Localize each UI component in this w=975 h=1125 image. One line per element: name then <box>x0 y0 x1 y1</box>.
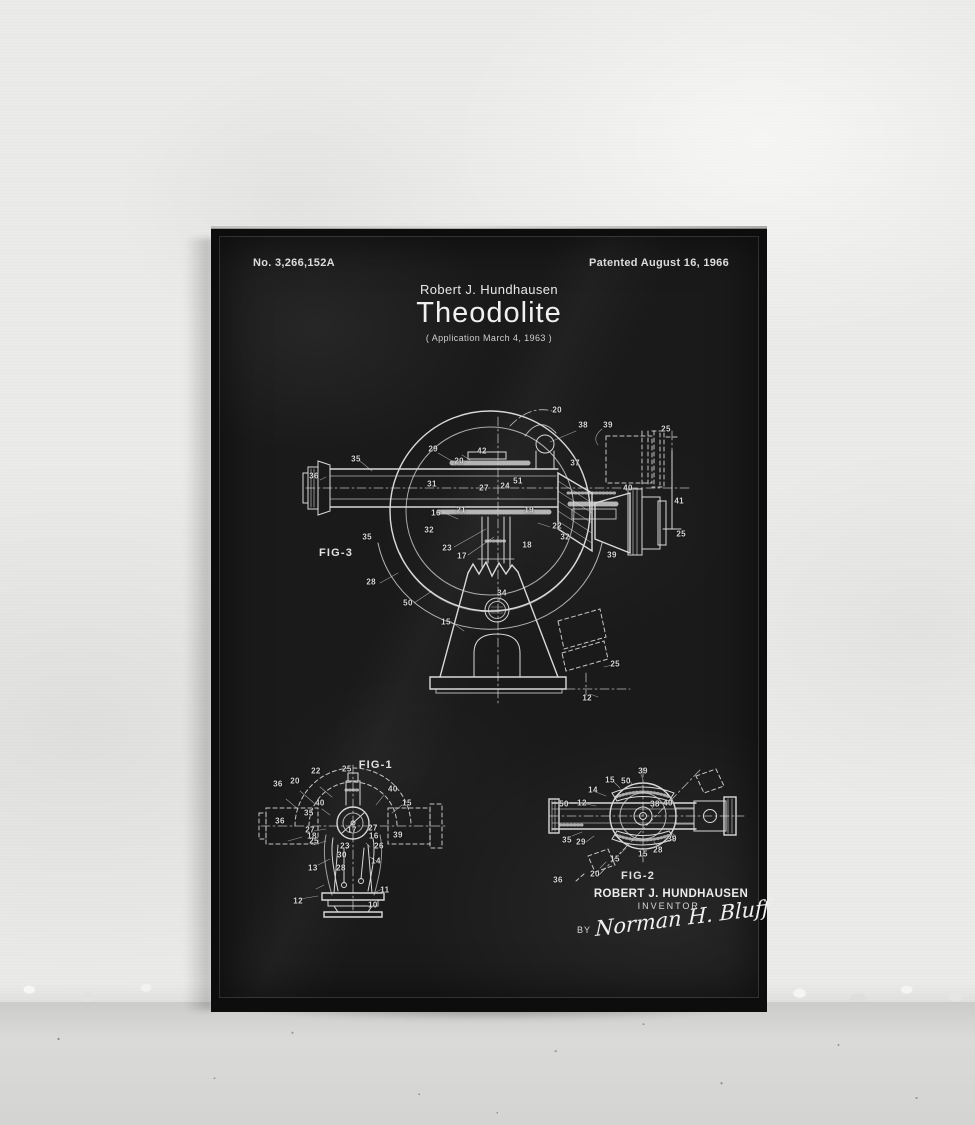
reference-numeral: 51 <box>513 476 523 485</box>
reference-numeral: 30 <box>337 850 347 859</box>
figure-2-drawing <box>548 764 748 884</box>
by-label: BY <box>577 925 591 935</box>
frame-shadow-left <box>180 238 212 1010</box>
reference-numeral: 39 <box>393 831 403 840</box>
reference-numeral: 36 <box>309 472 319 481</box>
reference-numeral: 31 <box>427 479 437 488</box>
reference-numeral: 10 <box>368 900 378 909</box>
reference-numeral: 12 <box>577 799 587 808</box>
reference-numeral: 12 <box>582 694 592 703</box>
reference-numeral: 15 <box>638 850 648 859</box>
reference-numeral: 34 <box>497 588 507 597</box>
reference-numeral: 20 <box>454 456 464 465</box>
reference-numeral: 39 <box>603 420 613 429</box>
application-date-line: ( Application March 4, 1963 ) <box>219 333 759 343</box>
reference-numeral: 17 <box>347 826 357 835</box>
inventor-signature-name: ROBERT J. HUNDHAUSEN <box>591 888 751 900</box>
reference-numeral: 29 <box>576 838 586 847</box>
reference-numeral: 50 <box>403 599 413 608</box>
figure-2-top-view: FIG-2 39155014125038403529392815152036 <box>548 764 748 884</box>
reference-numeral: 25 <box>676 530 686 539</box>
reference-numeral: 14 <box>371 857 381 866</box>
reference-numeral: 15 <box>605 775 615 784</box>
reference-numeral: 36 <box>553 876 563 885</box>
reference-numeral: 37 <box>570 458 580 467</box>
reference-numeral: 35 <box>351 454 361 463</box>
reference-numeral: 15 <box>610 855 620 864</box>
reference-numeral: 16 <box>431 509 441 518</box>
reference-numeral: 29 <box>428 444 438 453</box>
reference-numeral: 39 <box>638 766 648 775</box>
reference-numeral: 36 <box>273 780 283 789</box>
reference-numeral: 25 <box>309 836 319 845</box>
reference-numeral: 17 <box>457 551 467 560</box>
reference-numeral: 20 <box>552 406 562 415</box>
patent-date: Patented August 16, 1966 <box>589 257 729 269</box>
inventor-name-line: Robert J. Hundhausen <box>219 282 759 297</box>
reference-numeral: 23 <box>340 842 350 851</box>
reference-numeral: 35 <box>562 835 572 844</box>
reference-numeral: 18 <box>522 541 532 550</box>
reference-numeral: 32 <box>560 533 570 542</box>
reference-numeral: 28 <box>366 577 376 586</box>
reference-numeral: 40 <box>388 784 398 793</box>
reference-numeral: 22 <box>311 766 321 775</box>
reference-numeral: 15 <box>402 798 412 807</box>
reference-numeral: 41 <box>674 497 684 506</box>
reference-numeral: 25 <box>342 765 352 774</box>
signature-block: ROBERT J. HUNDHAUSEN INVENTOR. BY Norman… <box>591 888 751 941</box>
reference-numeral: 19 <box>524 506 534 515</box>
figure-3-label: FIG-3 <box>319 547 353 559</box>
reference-numeral: 50 <box>559 799 569 808</box>
figure-1-front-view: FIG-1 2225203640401535362717271816392523… <box>258 753 448 918</box>
reference-numeral: 13 <box>308 864 318 873</box>
reference-numeral: 16 <box>369 831 379 840</box>
reference-numeral: 40 <box>663 799 673 808</box>
reference-numeral: 38 <box>650 799 660 808</box>
reference-numeral: 20 <box>290 777 300 786</box>
patent-poster: No. 3,266,152A Patented August 16, 1966 … <box>219 236 759 998</box>
reference-numeral: 24 <box>500 481 510 490</box>
reference-numeral: 42 <box>477 446 487 455</box>
reference-numeral: 38 <box>578 420 588 429</box>
reference-numeral: 40 <box>315 798 325 807</box>
reference-numeral: 36 <box>275 816 285 825</box>
reference-numeral: 14 <box>588 786 598 795</box>
reference-numeral: 39 <box>667 835 677 844</box>
poster-title: Theodolite <box>219 297 759 330</box>
reference-numeral: 25 <box>610 660 620 669</box>
reference-numeral: 50 <box>621 777 631 786</box>
reference-numeral: 35 <box>304 809 314 818</box>
reference-numeral: 23 <box>442 543 452 552</box>
reference-numeral: 32 <box>424 526 434 535</box>
reference-numeral: 28 <box>336 864 346 873</box>
reference-numeral: 25 <box>661 424 671 433</box>
poster-frame: No. 3,266,152A Patented August 16, 1966 … <box>211 228 767 1012</box>
reference-numeral: 22 <box>552 521 562 530</box>
figure-1-drawing <box>258 753 448 918</box>
figure-3-side-view: FIG-3 2038392529422035373631512427404121… <box>300 381 700 711</box>
reference-numeral: 39 <box>607 550 617 559</box>
reference-numeral: 28 <box>653 846 663 855</box>
reference-numeral: 21 <box>456 506 466 515</box>
reference-numeral: 11 <box>380 885 389 894</box>
reference-numeral: 12 <box>293 897 303 906</box>
reference-numeral: 26 <box>374 842 384 851</box>
figure-2-label: FIG-2 <box>621 870 655 882</box>
reference-numeral: 27 <box>479 483 489 492</box>
reference-numeral: 35 <box>362 533 372 542</box>
figure-3-drawing <box>300 381 700 711</box>
patent-number: No. 3,266,152A <box>253 257 335 269</box>
reference-numeral: 20 <box>590 870 600 879</box>
reference-numeral: 40 <box>623 483 633 492</box>
figure-1-label: FIG-1 <box>359 759 393 771</box>
reference-numeral: 15 <box>441 617 451 626</box>
